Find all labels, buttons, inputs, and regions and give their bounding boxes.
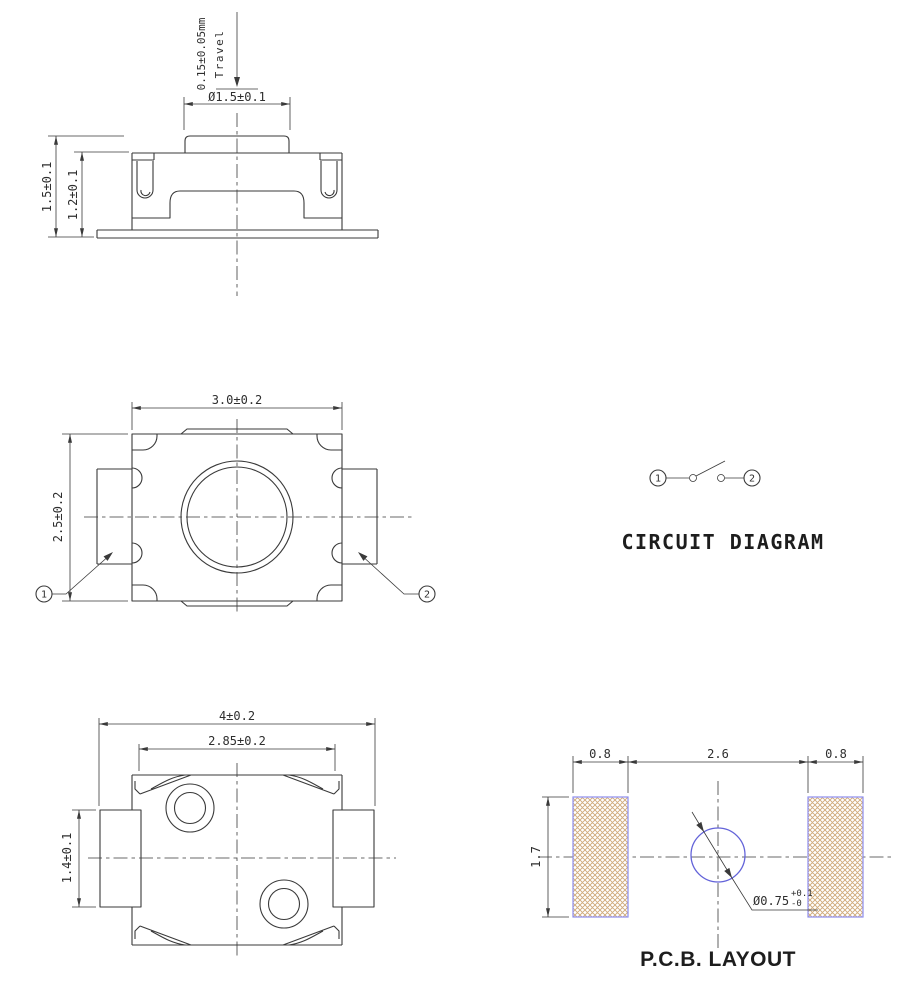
terminal-1-number: 1 (41, 590, 47, 601)
hole-tolerance-upper-label: +0.1 (791, 889, 813, 899)
left-pad-width-label: 0.8 (589, 747, 611, 761)
dim-hole-diameter: Ø0.75 +0.1 -0 (692, 812, 818, 910)
terminal-left (97, 469, 132, 564)
terminal-reliefs-left (132, 468, 142, 563)
travel-word-label: Travel (213, 30, 226, 79)
top-view: 3.0±0.2 2.5±0.2 1 2 (36, 393, 435, 614)
terminal-reliefs-right (332, 468, 342, 563)
drawing-canvas: 0.15±0.05mm Travel Ø1.5±0.1 1.5±0.1 (0, 0, 900, 985)
overall-height-label: 1.5±0.1 (40, 162, 54, 213)
terminal-2-number: 2 (424, 590, 430, 601)
bottom-view: 4±0.2 2.85±0.2 1.4±0.1 (60, 709, 396, 957)
body-height-label: 1.2±0.1 (66, 170, 80, 221)
cover-claw-bl (135, 926, 191, 945)
dim-body-height: 1.2±0.1 (66, 152, 129, 237)
circuit-terminal-1-number: 1 (655, 474, 661, 485)
terminal-base-profile (97, 230, 378, 238)
terminal-1-callout: 1 (36, 550, 115, 602)
pad-height-label: 1.7 (529, 846, 543, 868)
contact-node-left (690, 475, 697, 482)
pcb-layout-title: P.C.B. LAYOUT (640, 948, 796, 971)
circuit-diagram: 1 2 CIRCUIT DIAGRAM (621, 461, 824, 554)
locating-boss-2-inner (269, 889, 300, 920)
corner-relief-bl (132, 585, 157, 601)
locating-boss-1-outer (166, 784, 214, 832)
pad-gap-label: 2.6 (707, 747, 729, 761)
cover-claw-tl (135, 775, 191, 794)
travel-arrow (234, 77, 240, 87)
contact-node-right (718, 475, 725, 482)
base-width-label: 2.85±0.2 (208, 734, 266, 748)
terminal-width-label: 1.4±0.1 (60, 833, 74, 884)
corner-relief-tl (132, 434, 157, 450)
actuator-diameter-label: Ø1.5±0.1 (208, 90, 266, 104)
cover-claw-right (321, 161, 337, 198)
dim-body-depth: 2.5±0.2 (51, 434, 128, 601)
switch-side-outline (97, 136, 378, 238)
corner-relief-br (317, 585, 342, 601)
pcb-layout: 0.8 2.6 0.8 1.7 Ø0.75 +0.1 -0 P.C.B. LAY… (529, 747, 894, 971)
dim-terminal-width: 1.4±0.1 (60, 810, 96, 907)
cover-claw-tr (283, 775, 339, 794)
right-pad-width-label: 0.8 (825, 747, 847, 761)
terminal-left (100, 810, 141, 907)
cover-claw-br (283, 926, 339, 945)
circuit-terminal-2-number: 2 (749, 474, 755, 485)
overall-width-label: 4±0.2 (219, 709, 255, 723)
body-depth-label: 2.5±0.2 (51, 492, 65, 543)
travel-value-label: 0.15±0.05mm (195, 17, 208, 90)
pcb-pad-right (808, 797, 863, 917)
engineering-drawing-sheet: 0.15±0.05mm Travel Ø1.5±0.1 1.5±0.1 (0, 0, 900, 985)
circuit-diagram-title: CIRCUIT DIAGRAM (621, 530, 824, 554)
locating-boss-2-outer (260, 880, 308, 928)
switch-lever (696, 461, 725, 476)
terminal-2-callout: 2 (356, 550, 435, 602)
terminal-right (342, 469, 377, 564)
cover-claw-left (137, 161, 153, 198)
side-view: 0.15±0.05mm Travel Ø1.5±0.1 1.5±0.1 (40, 12, 378, 296)
dim-travel: 0.15±0.05mm Travel (195, 12, 258, 90)
locating-boss-1-inner (175, 793, 206, 824)
terminal-right (333, 810, 374, 907)
body-width-label: 3.0±0.2 (212, 393, 263, 407)
hole-diameter-label: Ø0.75 (753, 894, 789, 908)
hole-tolerance-lower-label: -0 (791, 899, 802, 909)
pcb-pad-left (573, 797, 628, 917)
corner-relief-tr (317, 434, 342, 450)
